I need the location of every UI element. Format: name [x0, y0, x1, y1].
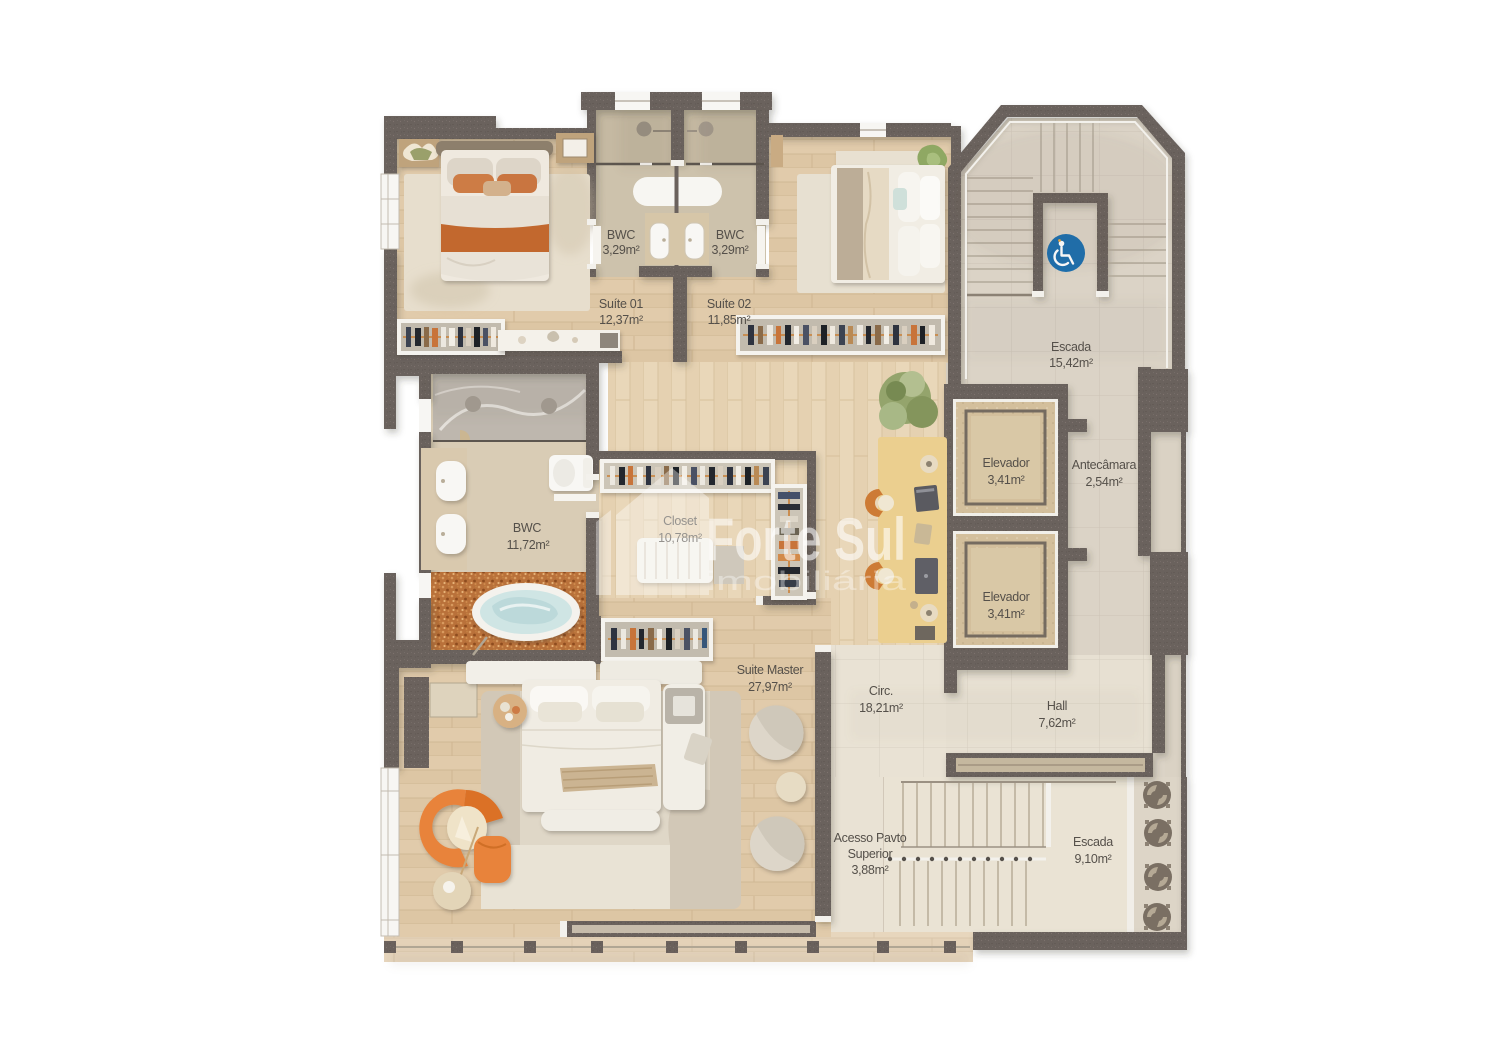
svg-text:27,97m²: 27,97m²	[748, 680, 792, 694]
svg-text:Escada: Escada	[1051, 340, 1091, 354]
svg-text:Suíte 02: Suíte 02	[707, 297, 752, 311]
svg-text:Hall: Hall	[1047, 699, 1067, 713]
svg-text:Escada: Escada	[1073, 835, 1113, 849]
svg-text:Elevador: Elevador	[983, 456, 1030, 470]
svg-text:Suíte 01: Suíte 01	[599, 297, 644, 311]
svg-text:11,85m²: 11,85m²	[708, 313, 751, 327]
svg-text:Circ.: Circ.	[869, 684, 893, 698]
svg-text:3,88m²: 3,88m²	[851, 863, 888, 877]
svg-text:Elevador: Elevador	[983, 590, 1030, 604]
svg-text:BWC: BWC	[607, 228, 636, 242]
svg-text:BWC: BWC	[513, 521, 542, 535]
svg-text:Forte Sul: Forte Sul	[706, 506, 906, 573]
svg-text:Suite Master: Suite Master	[737, 663, 804, 677]
svg-text:7,62m²: 7,62m²	[1038, 716, 1075, 730]
svg-text:12,37m²: 12,37m²	[599, 313, 643, 327]
svg-text:3,29m²: 3,29m²	[711, 243, 748, 257]
svg-text:3,41m²: 3,41m²	[987, 607, 1024, 621]
svg-text:Acesso Pavto: Acesso Pavto	[834, 831, 907, 845]
svg-text:3,29m²: 3,29m²	[602, 243, 639, 257]
svg-text:9,10m²: 9,10m²	[1074, 852, 1111, 866]
svg-text:18,21m²: 18,21m²	[859, 701, 903, 715]
svg-text:Superior: Superior	[848, 847, 893, 861]
svg-text:BWC: BWC	[716, 228, 745, 242]
svg-text:3,41m²: 3,41m²	[987, 473, 1024, 487]
svg-text:imobiliária: imobiliária	[706, 566, 908, 596]
svg-text:11,72m²: 11,72m²	[507, 538, 550, 552]
svg-text:Antecâmara: Antecâmara	[1072, 458, 1137, 472]
svg-text:15,42m²: 15,42m²	[1049, 356, 1093, 370]
svg-text:2,54m²: 2,54m²	[1085, 475, 1122, 489]
